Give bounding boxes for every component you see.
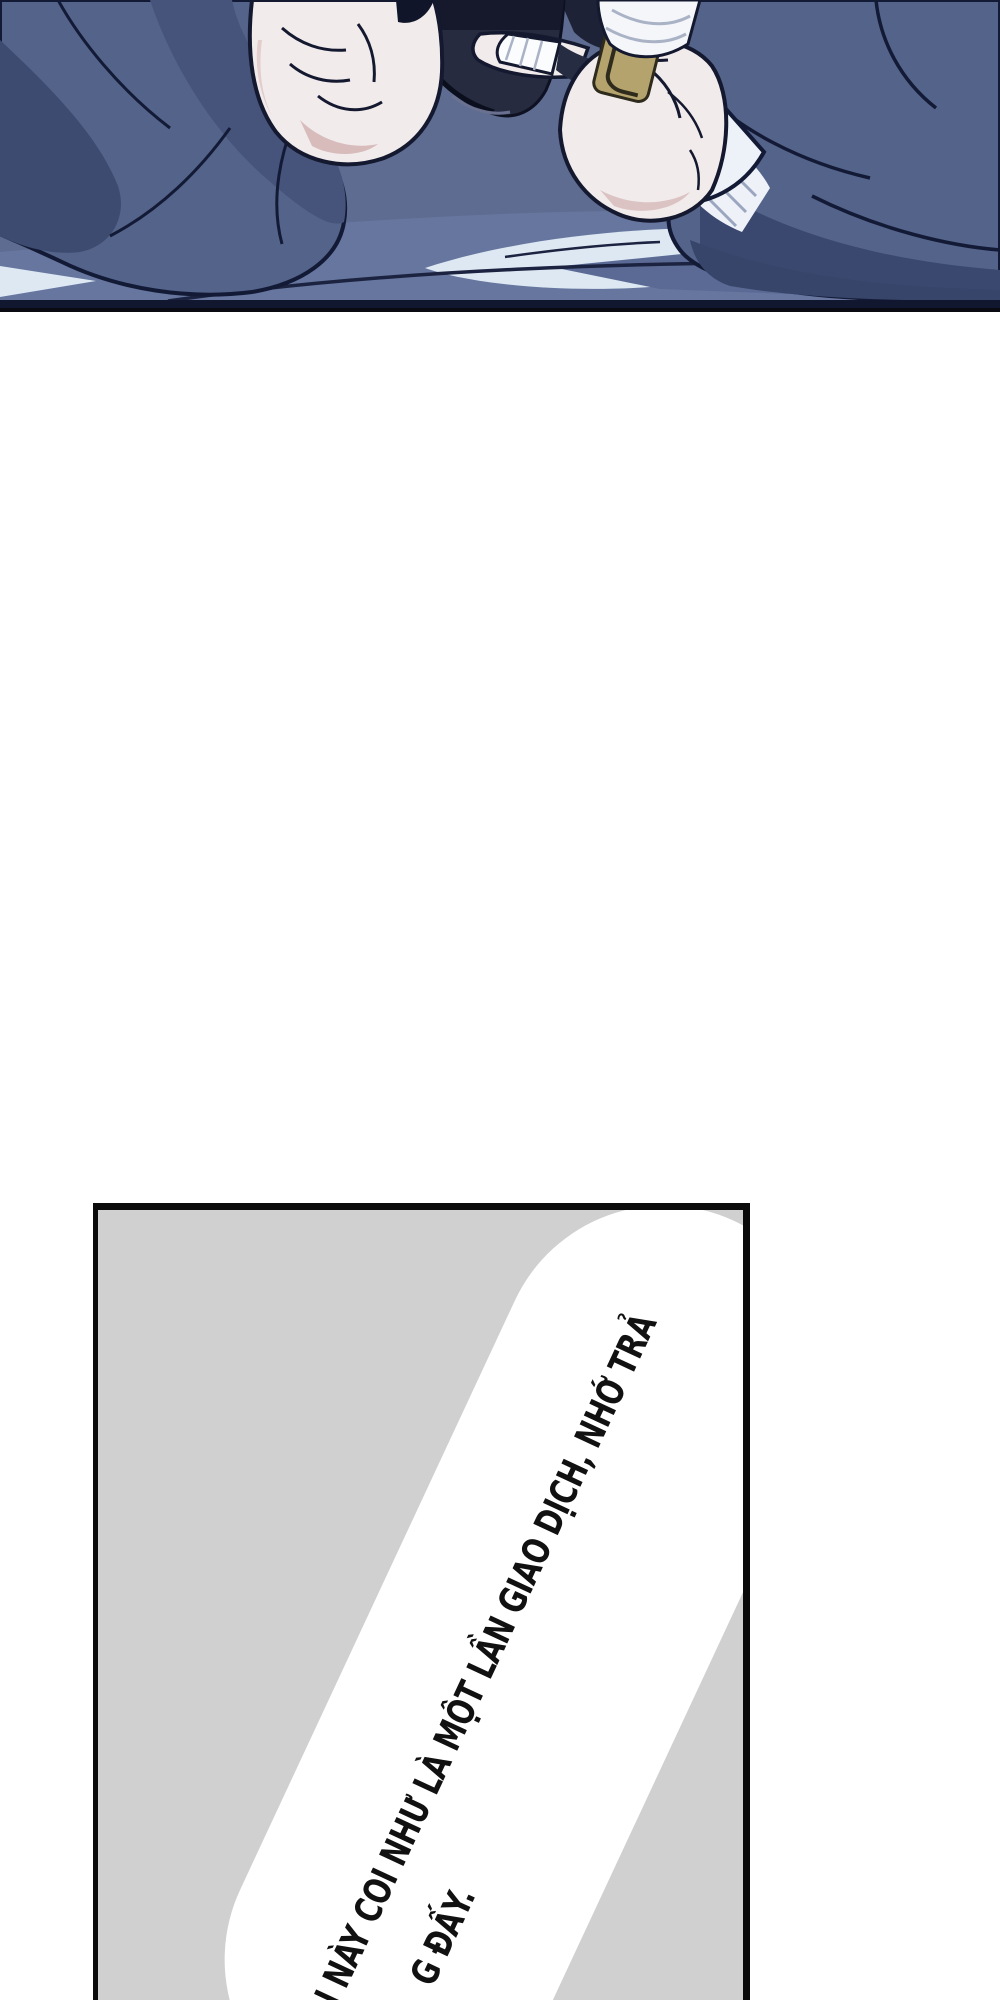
artwork-panel — [0, 0, 1000, 312]
speech-bubble: ẦN NÀY COI NHƯ LÀ MỘT LẦN GIAO DỊCH, NHỚ… — [170, 1203, 750, 2000]
panel-bottom-border — [0, 300, 1000, 312]
speech-panel: ẦN NÀY COI NHƯ LÀ MỘT LẦN GIAO DỊCH, NHỚ… — [93, 1203, 750, 2000]
comic-page: ẦN NÀY COI NHƯ LÀ MỘT LẦN GIAO DỊCH, NHỚ… — [0, 0, 1000, 2000]
hands-holding-phone-illustration — [0, 0, 1000, 312]
speech-text: ẦN NÀY COI NHƯ LÀ MỘT LẦN GIAO DỊCH, NHỚ… — [170, 1364, 750, 2000]
